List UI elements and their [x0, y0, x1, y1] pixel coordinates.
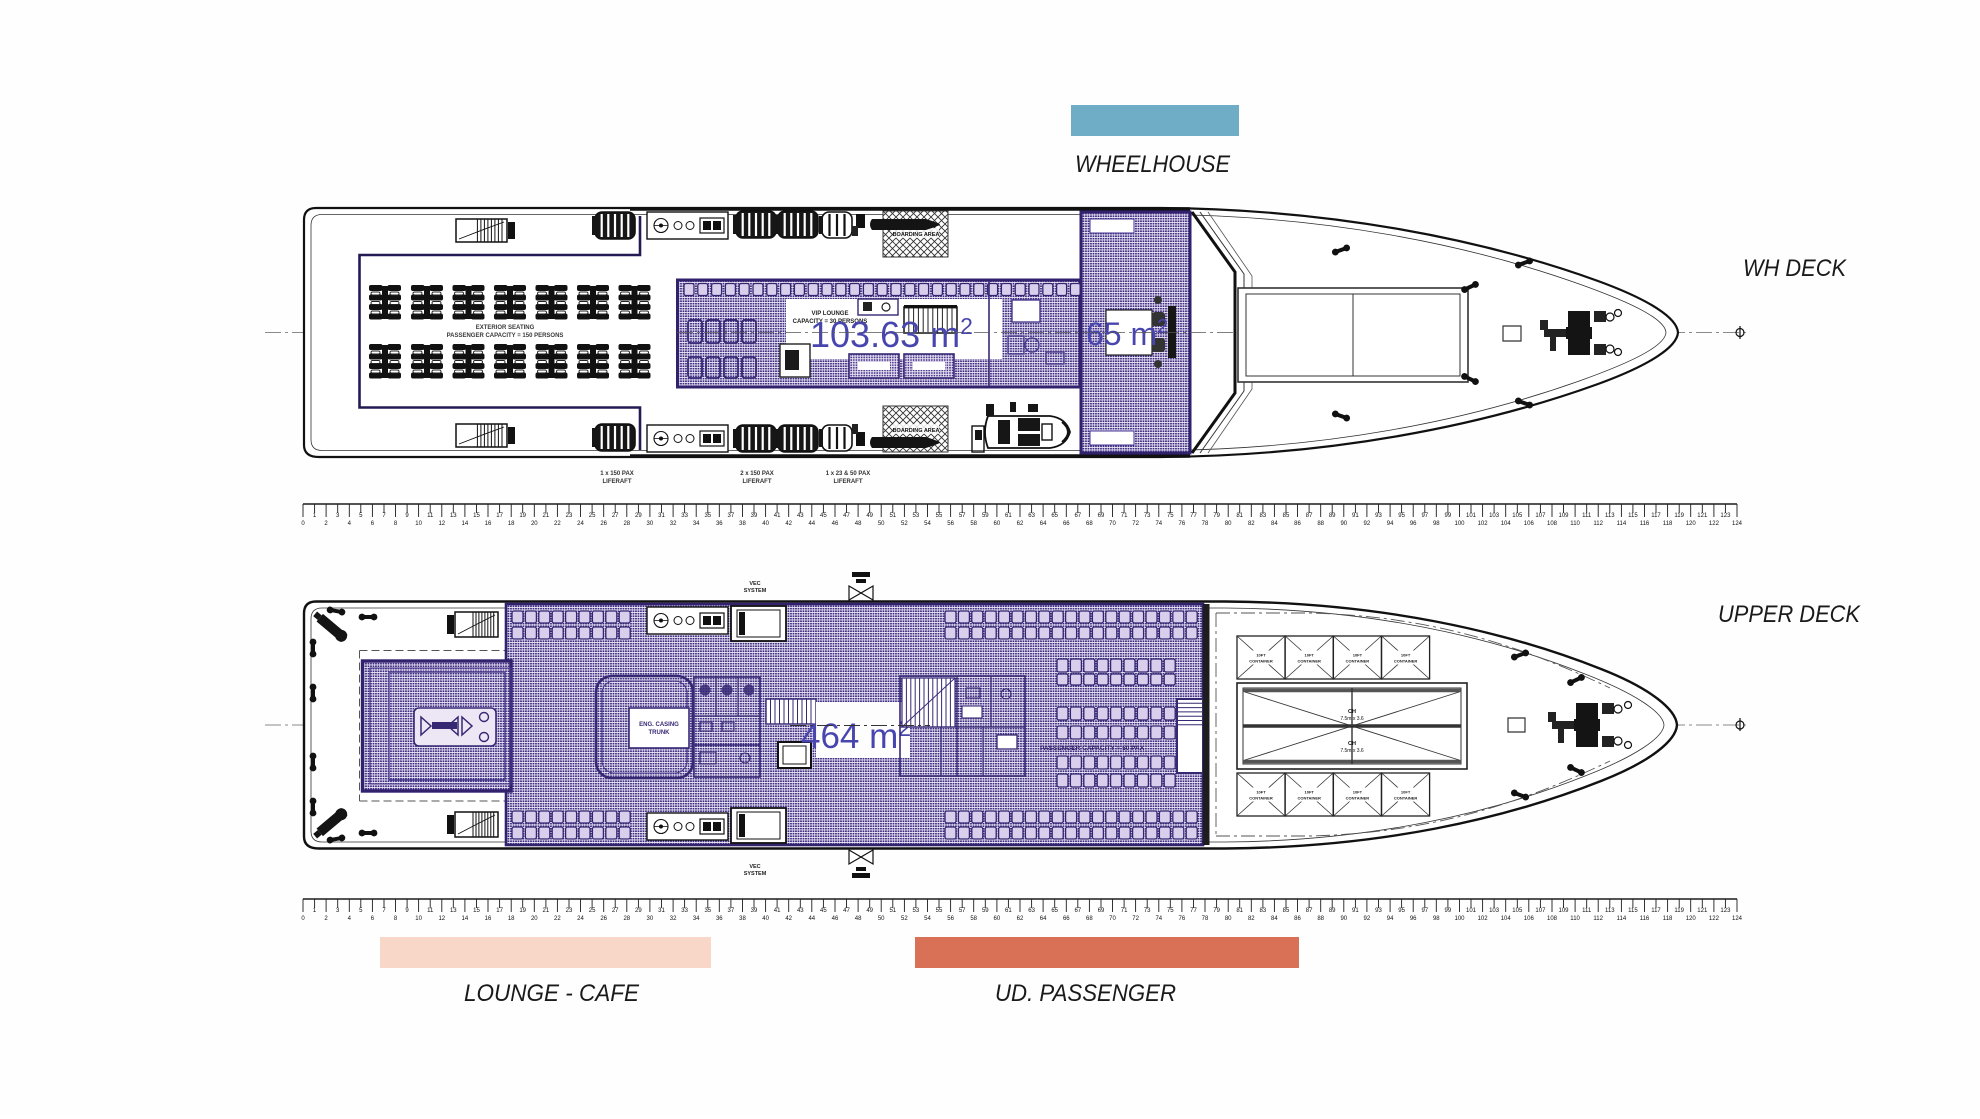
svg-text:40: 40 — [762, 521, 769, 527]
svg-text:72: 72 — [1132, 916, 1139, 922]
svg-text:105: 105 — [1512, 513, 1523, 519]
svg-text:CONTAINER: CONTAINER — [1249, 659, 1273, 664]
svg-text:64: 64 — [1040, 916, 1047, 922]
svg-text:122: 122 — [1709, 916, 1720, 922]
svg-text:123: 123 — [1720, 908, 1731, 914]
svg-text:33: 33 — [681, 513, 688, 519]
svg-text:10FT: 10FT — [1353, 653, 1363, 658]
svg-text:48: 48 — [855, 521, 862, 527]
svg-text:81: 81 — [1236, 908, 1243, 914]
svg-text:80: 80 — [1225, 916, 1232, 922]
svg-text:38: 38 — [739, 916, 746, 922]
svg-text:25: 25 — [589, 908, 596, 914]
svg-text:94: 94 — [1387, 521, 1394, 527]
svg-text:86: 86 — [1294, 916, 1301, 922]
svg-text:117: 117 — [1651, 513, 1661, 519]
svg-text:77: 77 — [1190, 513, 1197, 519]
svg-text:23: 23 — [566, 908, 573, 914]
svg-text:UD. PASSENGER: UD. PASSENGER — [995, 980, 1176, 1007]
svg-text:121: 121 — [1697, 908, 1708, 914]
svg-text:70: 70 — [1109, 521, 1116, 527]
svg-text:95: 95 — [1398, 908, 1405, 914]
svg-text:122: 122 — [1709, 521, 1720, 527]
svg-text:110: 110 — [1570, 521, 1580, 527]
svg-text:76: 76 — [1179, 521, 1186, 527]
svg-text:35: 35 — [704, 908, 711, 914]
svg-text:1 x 150 PAX: 1 x 150 PAX — [600, 471, 634, 477]
svg-text:111: 111 — [1582, 908, 1592, 914]
svg-text:ENG. CASING: ENG. CASING — [639, 722, 679, 728]
svg-text:22: 22 — [554, 521, 561, 527]
svg-text:69: 69 — [1098, 908, 1105, 914]
svg-text:47: 47 — [843, 908, 850, 914]
svg-text:31: 31 — [658, 513, 665, 519]
svg-text:87: 87 — [1306, 513, 1313, 519]
svg-text:14: 14 — [462, 521, 469, 527]
svg-text:CONTAINER: CONTAINER — [1297, 796, 1321, 801]
svg-text:60: 60 — [994, 521, 1001, 527]
svg-text:18: 18 — [508, 521, 515, 527]
svg-text:119: 119 — [1674, 908, 1684, 914]
svg-text:107: 107 — [1535, 908, 1546, 914]
svg-text:20: 20 — [531, 521, 538, 527]
svg-text:58: 58 — [970, 521, 977, 527]
svg-text:93: 93 — [1375, 513, 1382, 519]
svg-text:CONTAINER: CONTAINER — [1346, 659, 1370, 664]
svg-text:17: 17 — [496, 908, 503, 914]
svg-text:42: 42 — [785, 916, 792, 922]
svg-text:41: 41 — [774, 513, 781, 519]
svg-text:60: 60 — [994, 916, 1001, 922]
svg-text:41: 41 — [774, 908, 781, 914]
svg-text:CONTAINER: CONTAINER — [1346, 796, 1370, 801]
svg-text:20: 20 — [531, 916, 538, 922]
svg-text:49: 49 — [866, 513, 873, 519]
svg-text:76: 76 — [1179, 916, 1186, 922]
svg-text:89: 89 — [1329, 513, 1336, 519]
svg-text:30: 30 — [647, 521, 654, 527]
svg-text:106: 106 — [1524, 916, 1535, 922]
svg-text:46: 46 — [832, 521, 839, 527]
svg-text:61: 61 — [1005, 513, 1012, 519]
svg-text:106: 106 — [1524, 521, 1535, 527]
svg-text:30: 30 — [647, 916, 654, 922]
svg-text:98: 98 — [1433, 916, 1440, 922]
svg-text:34: 34 — [693, 521, 700, 527]
svg-text:116: 116 — [1640, 916, 1650, 922]
svg-text:39: 39 — [751, 513, 758, 519]
svg-text:PASSENGER CAPACITY = 50 PAX: PASSENGER CAPACITY = 50 PAX — [1040, 745, 1145, 752]
svg-text:51: 51 — [889, 513, 896, 519]
svg-text:10FT: 10FT — [1401, 790, 1411, 795]
svg-text:59: 59 — [982, 513, 989, 519]
svg-text:87: 87 — [1306, 908, 1313, 914]
svg-text:92: 92 — [1364, 521, 1371, 527]
svg-text:32: 32 — [670, 916, 677, 922]
svg-text:104: 104 — [1501, 521, 1512, 527]
svg-text:113: 113 — [1605, 908, 1615, 914]
svg-text:96: 96 — [1410, 521, 1417, 527]
svg-text:67: 67 — [1074, 513, 1081, 519]
svg-text:63: 63 — [1028, 513, 1035, 519]
svg-text:10: 10 — [415, 521, 422, 527]
svg-text:73: 73 — [1144, 908, 1151, 914]
svg-text:79: 79 — [1213, 908, 1220, 914]
svg-text:43: 43 — [797, 908, 804, 914]
svg-text:48: 48 — [855, 916, 862, 922]
svg-text:55: 55 — [936, 908, 943, 914]
svg-text:62: 62 — [1017, 521, 1024, 527]
svg-text:82: 82 — [1248, 521, 1255, 527]
svg-text:77: 77 — [1190, 908, 1197, 914]
svg-text:110: 110 — [1570, 916, 1580, 922]
svg-text:88: 88 — [1317, 916, 1324, 922]
svg-text:80: 80 — [1225, 521, 1232, 527]
svg-text:124: 124 — [1732, 521, 1743, 527]
svg-text:97: 97 — [1421, 908, 1428, 914]
svg-text:TRUNK: TRUNK — [649, 730, 671, 736]
svg-text:28: 28 — [623, 916, 630, 922]
svg-text:109: 109 — [1558, 908, 1569, 914]
svg-text:70: 70 — [1109, 916, 1116, 922]
svg-text:71: 71 — [1121, 908, 1128, 914]
svg-text:103: 103 — [1489, 908, 1500, 914]
svg-text:27: 27 — [612, 513, 619, 519]
svg-text:88: 88 — [1317, 521, 1324, 527]
svg-text:13: 13 — [450, 908, 457, 914]
svg-text:38: 38 — [739, 521, 746, 527]
svg-text:1 x 23 & 50 PAX: 1 x 23 & 50 PAX — [826, 471, 871, 477]
svg-text:100: 100 — [1454, 521, 1465, 527]
svg-text:11: 11 — [427, 908, 434, 914]
svg-text:53: 53 — [913, 908, 920, 914]
svg-text:CONTAINER: CONTAINER — [1394, 659, 1418, 664]
svg-text:37: 37 — [728, 513, 735, 519]
svg-text:97: 97 — [1421, 513, 1428, 519]
svg-text:64: 64 — [1040, 521, 1047, 527]
svg-text:LIFERAFT: LIFERAFT — [834, 479, 863, 485]
svg-text:99: 99 — [1445, 513, 1452, 519]
svg-text:79: 79 — [1213, 513, 1220, 519]
svg-text:112: 112 — [1593, 521, 1603, 527]
svg-text:111: 111 — [1582, 513, 1592, 519]
svg-text:65: 65 — [1051, 908, 1058, 914]
svg-text:78: 78 — [1202, 521, 1209, 527]
svg-text:CONTAINER: CONTAINER — [1394, 796, 1418, 801]
svg-text:102: 102 — [1478, 916, 1489, 922]
svg-text:44: 44 — [808, 916, 815, 922]
svg-text:2 x 150 PAX: 2 x 150 PAX — [740, 471, 774, 477]
svg-text:40: 40 — [762, 916, 769, 922]
svg-text:VEC: VEC — [749, 864, 760, 870]
svg-text:91: 91 — [1352, 908, 1359, 914]
svg-text:56: 56 — [947, 521, 954, 527]
svg-text:120: 120 — [1686, 521, 1697, 527]
svg-text:36: 36 — [716, 521, 723, 527]
svg-text:10FT: 10FT — [1256, 653, 1266, 658]
svg-text:68: 68 — [1086, 916, 1093, 922]
svg-text:62: 62 — [1017, 916, 1024, 922]
svg-text:SYSTEM: SYSTEM — [744, 588, 767, 594]
svg-text:115: 115 — [1628, 513, 1638, 519]
svg-text:35: 35 — [704, 513, 711, 519]
svg-text:19: 19 — [519, 513, 526, 519]
svg-text:114: 114 — [1617, 521, 1627, 527]
svg-text:121: 121 — [1697, 513, 1708, 519]
svg-text:33: 33 — [681, 908, 688, 914]
svg-text:26: 26 — [600, 916, 607, 922]
svg-text:107: 107 — [1535, 513, 1546, 519]
svg-text:24: 24 — [577, 521, 584, 527]
svg-text:VEC: VEC — [749, 581, 760, 587]
svg-text:118: 118 — [1663, 916, 1673, 922]
svg-text:84: 84 — [1271, 521, 1278, 527]
svg-text:52: 52 — [901, 916, 908, 922]
svg-text:109: 109 — [1558, 513, 1569, 519]
svg-text:90: 90 — [1340, 916, 1347, 922]
svg-text:99: 99 — [1445, 908, 1452, 914]
svg-text:50: 50 — [878, 521, 885, 527]
svg-text:10: 10 — [415, 916, 422, 922]
svg-text:85: 85 — [1283, 513, 1290, 519]
svg-text:102: 102 — [1478, 521, 1489, 527]
svg-text:61: 61 — [1005, 908, 1012, 914]
svg-text:LIFERAFT: LIFERAFT — [603, 479, 632, 485]
svg-text:82: 82 — [1248, 916, 1255, 922]
svg-text:92: 92 — [1364, 916, 1371, 922]
svg-text:81: 81 — [1236, 513, 1243, 519]
svg-text:93: 93 — [1375, 908, 1382, 914]
svg-text:39: 39 — [751, 908, 758, 914]
svg-text:7.5m x 3.6: 7.5m x 3.6 — [1340, 748, 1364, 754]
svg-text:29: 29 — [635, 908, 642, 914]
svg-text:EXTERIOR SEATING: EXTERIOR SEATING — [476, 325, 535, 331]
svg-text:53: 53 — [913, 513, 920, 519]
svg-text:113: 113 — [1605, 513, 1615, 519]
svg-text:10FT: 10FT — [1353, 790, 1363, 795]
svg-text:47: 47 — [843, 513, 850, 519]
svg-text:24: 24 — [577, 916, 584, 922]
svg-text:12: 12 — [438, 521, 445, 527]
svg-text:WHEELHOUSE: WHEELHOUSE — [1075, 151, 1231, 178]
svg-text:12: 12 — [438, 916, 445, 922]
svg-text:32: 32 — [670, 521, 677, 527]
svg-text:114: 114 — [1617, 916, 1627, 922]
svg-text:120: 120 — [1686, 916, 1697, 922]
svg-text:94: 94 — [1387, 916, 1394, 922]
svg-text:BOARDING AREA: BOARDING AREA — [893, 232, 940, 238]
svg-text:84: 84 — [1271, 916, 1278, 922]
svg-text:464 m2: 464 m2 — [801, 715, 911, 756]
svg-text:27: 27 — [612, 908, 619, 914]
svg-text:SYSTEM: SYSTEM — [744, 871, 767, 877]
svg-text:72: 72 — [1132, 521, 1139, 527]
svg-text:23: 23 — [566, 513, 573, 519]
svg-text:69: 69 — [1098, 513, 1105, 519]
svg-text:63: 63 — [1028, 908, 1035, 914]
svg-text:54: 54 — [924, 521, 931, 527]
svg-text:LIFERAFT: LIFERAFT — [743, 479, 772, 485]
svg-text:75: 75 — [1167, 908, 1174, 914]
svg-text:75: 75 — [1167, 513, 1174, 519]
svg-text:CH: CH — [1348, 741, 1356, 747]
svg-text:65 m2: 65 m2 — [1086, 316, 1168, 352]
svg-text:22: 22 — [554, 916, 561, 922]
svg-text:43: 43 — [797, 513, 804, 519]
svg-text:98: 98 — [1433, 521, 1440, 527]
svg-text:83: 83 — [1260, 513, 1267, 519]
svg-text:13: 13 — [450, 513, 457, 519]
svg-text:57: 57 — [959, 513, 966, 519]
svg-text:10FT: 10FT — [1401, 653, 1411, 658]
svg-text:58: 58 — [970, 916, 977, 922]
svg-text:86: 86 — [1294, 521, 1301, 527]
svg-text:16: 16 — [485, 916, 492, 922]
svg-text:78: 78 — [1202, 916, 1209, 922]
svg-text:31: 31 — [658, 908, 665, 914]
svg-text:26: 26 — [600, 521, 607, 527]
svg-text:56: 56 — [947, 916, 954, 922]
svg-text:124: 124 — [1732, 916, 1743, 922]
svg-text:29: 29 — [635, 513, 642, 519]
svg-text:LOUNGE - CAFE: LOUNGE - CAFE — [464, 980, 640, 1007]
svg-text:52: 52 — [901, 521, 908, 527]
svg-text:46: 46 — [832, 916, 839, 922]
svg-text:85: 85 — [1283, 908, 1290, 914]
svg-text:74: 74 — [1155, 916, 1162, 922]
svg-text:16: 16 — [485, 521, 492, 527]
svg-text:112: 112 — [1593, 916, 1603, 922]
svg-text:10FT: 10FT — [1305, 790, 1315, 795]
svg-text:65: 65 — [1051, 513, 1058, 519]
svg-text:89: 89 — [1329, 908, 1336, 914]
svg-text:118: 118 — [1663, 521, 1673, 527]
svg-text:105: 105 — [1512, 908, 1523, 914]
svg-text:59: 59 — [982, 908, 989, 914]
svg-text:28: 28 — [623, 521, 630, 527]
svg-text:UPPER DECK: UPPER DECK — [1718, 601, 1861, 628]
svg-text:42: 42 — [785, 521, 792, 527]
svg-text:25: 25 — [589, 513, 596, 519]
svg-text:49: 49 — [866, 908, 873, 914]
svg-text:83: 83 — [1260, 908, 1267, 914]
svg-text:CONTAINER: CONTAINER — [1297, 659, 1321, 664]
svg-text:103: 103 — [1489, 513, 1500, 519]
svg-text:74: 74 — [1155, 521, 1162, 527]
svg-text:91: 91 — [1352, 513, 1359, 519]
svg-text:123: 123 — [1720, 513, 1731, 519]
svg-text:CH: CH — [1348, 709, 1356, 715]
svg-text:44: 44 — [808, 521, 815, 527]
svg-text:37: 37 — [728, 908, 735, 914]
svg-text:116: 116 — [1640, 521, 1650, 527]
svg-text:45: 45 — [820, 513, 827, 519]
svg-text:21: 21 — [543, 908, 550, 914]
svg-text:34: 34 — [693, 916, 700, 922]
svg-text:51: 51 — [889, 908, 896, 914]
svg-text:21: 21 — [543, 513, 550, 519]
svg-text:55: 55 — [936, 513, 943, 519]
svg-text:CONTAINER: CONTAINER — [1249, 796, 1273, 801]
svg-text:7.5m x 3.6: 7.5m x 3.6 — [1340, 716, 1364, 722]
svg-text:14: 14 — [462, 916, 469, 922]
svg-text:68: 68 — [1086, 521, 1093, 527]
svg-text:45: 45 — [820, 908, 827, 914]
svg-text:103.63 m2: 103.63 m2 — [810, 313, 973, 355]
svg-text:95: 95 — [1398, 513, 1405, 519]
svg-text:50: 50 — [878, 916, 885, 922]
svg-text:90: 90 — [1340, 521, 1347, 527]
svg-text:115: 115 — [1628, 908, 1638, 914]
svg-text:11: 11 — [427, 513, 434, 519]
svg-text:73: 73 — [1144, 513, 1151, 519]
svg-text:15: 15 — [473, 513, 480, 519]
svg-text:71: 71 — [1121, 513, 1128, 519]
svg-text:36: 36 — [716, 916, 723, 922]
svg-text:67: 67 — [1074, 908, 1081, 914]
svg-text:117: 117 — [1651, 908, 1661, 914]
svg-text:66: 66 — [1063, 916, 1070, 922]
svg-text:101: 101 — [1466, 908, 1477, 914]
svg-text:15: 15 — [473, 908, 480, 914]
svg-text:96: 96 — [1410, 916, 1417, 922]
svg-text:101: 101 — [1466, 513, 1477, 519]
svg-text:57: 57 — [959, 908, 966, 914]
svg-text:119: 119 — [1674, 513, 1684, 519]
svg-text:100: 100 — [1454, 916, 1465, 922]
svg-text:PASSENGER CAPACITY = 150 PERSO: PASSENGER CAPACITY = 150 PERSONS — [447, 333, 564, 339]
svg-text:19: 19 — [519, 908, 526, 914]
svg-text:66: 66 — [1063, 521, 1070, 527]
svg-text:17: 17 — [496, 513, 503, 519]
svg-text:10FT: 10FT — [1305, 653, 1315, 658]
svg-text:WH DECK: WH DECK — [1743, 255, 1847, 282]
svg-text:54: 54 — [924, 916, 931, 922]
svg-text:108: 108 — [1547, 521, 1558, 527]
svg-text:108: 108 — [1547, 916, 1558, 922]
svg-text:10FT: 10FT — [1256, 790, 1266, 795]
svg-text:18: 18 — [508, 916, 515, 922]
svg-text:BOARDING AREA: BOARDING AREA — [893, 428, 940, 434]
svg-text:104: 104 — [1501, 916, 1512, 922]
